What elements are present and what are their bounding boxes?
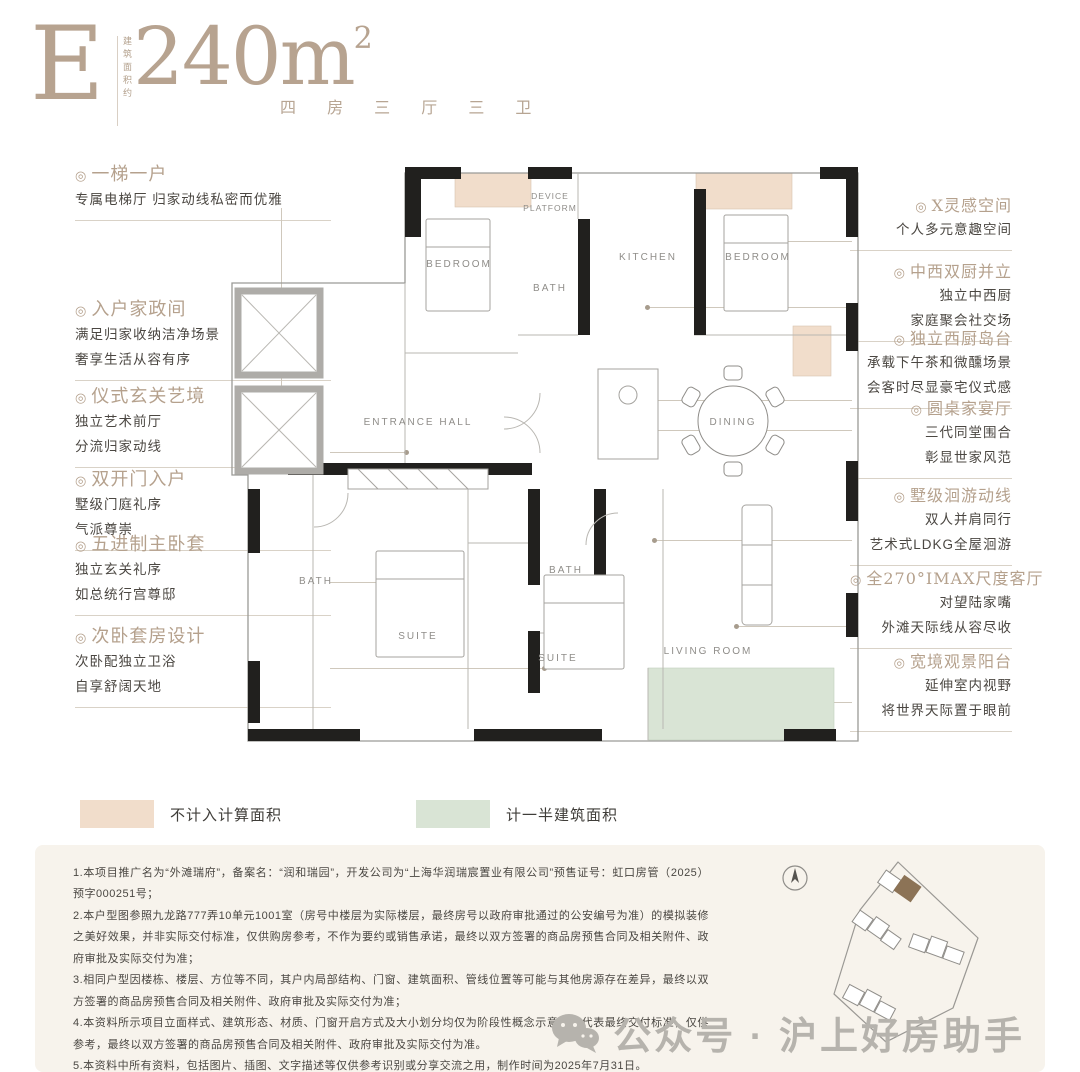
room-label-dining: DINING — [710, 417, 757, 428]
feature-line: 艺术式LDKG全屋洄游 — [850, 535, 1012, 556]
feature-title-text: 入户家政间 — [91, 299, 186, 320]
room-label-kitchen: KITCHEN — [619, 252, 677, 263]
legend-item: 计一半建筑面积 — [416, 800, 618, 828]
ring-bullet-icon: ◎ — [75, 391, 87, 406]
ring-bullet-icon: ◎ — [75, 539, 87, 554]
floor-plan: BEDROOM DEVICE PLATFORM BATH KITCHEN BED… — [228, 163, 863, 768]
feature-line: 对望陆家嘴 — [850, 593, 1012, 614]
feature-title: ◎宽境观景阳台 — [850, 648, 1012, 672]
ring-bullet-icon: ◎ — [894, 266, 906, 281]
divider — [850, 250, 1012, 251]
feature-line: 延伸室内视野 — [850, 676, 1012, 697]
layout-spec: 四 房 三 厅 三 卫 — [280, 94, 544, 118]
room-label-bedroom-left: BEDROOM — [426, 259, 492, 270]
feature-title: ◎中西双厨并立 — [850, 258, 1012, 282]
feature-title-text: 中西双厨并立 — [910, 262, 1012, 281]
ring-bullet-icon: ◎ — [911, 403, 923, 418]
feature-title: ◎X灵感空间 — [850, 192, 1012, 216]
feature-line: 双人并肩同行 — [850, 510, 1012, 531]
excluded-area-swatch — [80, 800, 154, 828]
ring-bullet-icon: ◎ — [915, 200, 927, 215]
brochure-page: E 建筑面积约 240m2 四 房 三 厅 三 卫 ◎一梯一户 专属电梯厅 归家… — [0, 0, 1080, 1072]
legend-item: 不计入计算面积 — [80, 800, 282, 828]
ring-bullet-icon: ◎ — [75, 304, 87, 319]
excluded-area-zone — [793, 326, 831, 376]
legend-label: 计一半建筑面积 — [506, 804, 618, 825]
compass-icon — [780, 863, 810, 898]
feature-line: 三代同堂围合 — [850, 423, 1012, 444]
ring-bullet-icon: ◎ — [75, 169, 87, 184]
wechat-icon — [549, 1011, 601, 1055]
divider — [850, 478, 1012, 479]
room-label-bedroom-right: BEDROOM — [725, 252, 791, 263]
feature-title-text: 双开门入户 — [91, 469, 186, 490]
room-label-suite-main: SUITE — [398, 631, 437, 642]
elevator-shafts — [238, 291, 320, 471]
feature-title-text: 墅级洄游动线 — [910, 486, 1012, 505]
feature-title-text: 仪式玄关艺境 — [91, 386, 205, 407]
feature-title: ◎独立西厨岛台 — [850, 325, 1012, 349]
area-caption: 建筑面积约 — [117, 36, 134, 126]
excluded-area-zone — [696, 173, 792, 209]
area-superscript: 2 — [354, 21, 373, 56]
feature-title-text: 全270°IMAX尺度客厅 — [866, 569, 1043, 588]
feature-line: 外滩天际线从容尽收 — [850, 618, 1012, 639]
room-label-bath-left: BATH — [299, 576, 333, 587]
feature-title: ◎圆桌家宴厅 — [850, 395, 1012, 419]
feature-line: 独立中西厨 — [850, 286, 1012, 307]
room-label-bath-top: BATH — [533, 283, 567, 294]
feature-title: ◎全270°IMAX尺度客厅 — [850, 565, 1012, 589]
feature-title-text: 独立西厨岛台 — [910, 329, 1012, 348]
watermark-text: 公众号 · 沪上好房助手 — [613, 1005, 1025, 1060]
feature-title-text: X灵感空间 — [932, 196, 1012, 215]
feature-annotation: ◎全270°IMAX尺度客厅 对望陆家嘴 外滩天际线从容尽收 — [850, 565, 1012, 649]
feature-line: 个人多元意趣空间 — [850, 220, 1012, 241]
feature-title-text: 圆桌家宴厅 — [927, 399, 1012, 418]
room-label-suite-second: SUITE — [538, 653, 577, 664]
room-label-device-platform: DEVICE — [531, 191, 569, 201]
feature-title-text: 一梯一户 — [91, 164, 167, 185]
divider — [850, 731, 1012, 732]
disclaimer-item: 1.本项目推广名为“外滩瑞府”，备案名：“润和瑞园”，开发公司为“上海华润瑞宸置… — [73, 863, 709, 906]
watermark: 公众号 · 沪上好房助手 — [549, 1005, 1025, 1060]
room-label-bath-mid: BATH — [549, 565, 583, 576]
feature-annotation: ◎圆桌家宴厅 三代同堂围合 彰显世家风范 — [850, 395, 1012, 479]
half-area-swatch — [416, 800, 490, 828]
brand-monogram: E — [30, 14, 104, 116]
feature-line: 将世界天际置于眼前 — [850, 701, 1012, 722]
floor-plan-drawing: BEDROOM DEVICE PLATFORM BATH KITCHEN BED… — [228, 163, 863, 763]
disclaimer-item: 2.本户型图参照九龙路777弄10单元1001室（房号中楼层为实际楼层，最终房号… — [73, 906, 709, 970]
feature-line: 彰显世家风范 — [850, 448, 1012, 469]
disclaimer-panel: 1.本项目推广名为“外滩瑞府”，备案名：“润和瑞园”，开发公司为“上海华润瑞宸置… — [35, 845, 1045, 1072]
feature-title-text: 五进制主卧套 — [91, 534, 205, 555]
room-label-entrance-hall: ENTRANCE HALL — [364, 417, 473, 428]
ring-bullet-icon: ◎ — [75, 474, 87, 489]
legend: 不计入计算面积 计一半建筑面积 — [80, 800, 618, 828]
ring-bullet-icon: ◎ — [894, 333, 906, 348]
feature-annotation: ◎墅级洄游动线 双人并肩同行 艺术式LDKG全屋洄游 — [850, 482, 1012, 566]
room-label-living-room: LIVING ROOM — [664, 646, 753, 657]
room-label-device-platform: PLATFORM — [523, 203, 577, 213]
feature-title-text: 宽境观景阳台 — [910, 652, 1012, 671]
feature-annotation: ◎X灵感空间 个人多元意趣空间 — [850, 192, 1012, 251]
feature-annotation: ◎宽境观景阳台 延伸室内视野 将世界天际置于眼前 — [850, 648, 1012, 732]
legend-label: 不计入计算面积 — [170, 804, 282, 825]
ring-bullet-icon: ◎ — [894, 490, 906, 505]
feature-title-text: 次卧套房设计 — [91, 626, 205, 647]
feature-title: ◎墅级洄游动线 — [850, 482, 1012, 506]
ring-bullet-icon: ◎ — [75, 631, 87, 646]
ring-bullet-icon: ◎ — [894, 656, 906, 671]
excluded-area-zone — [455, 173, 531, 207]
feature-line: 承载下午茶和微醺场景 — [850, 353, 1012, 374]
area-value: 240m2 — [133, 10, 373, 103]
area-number: 240m — [133, 10, 354, 103]
